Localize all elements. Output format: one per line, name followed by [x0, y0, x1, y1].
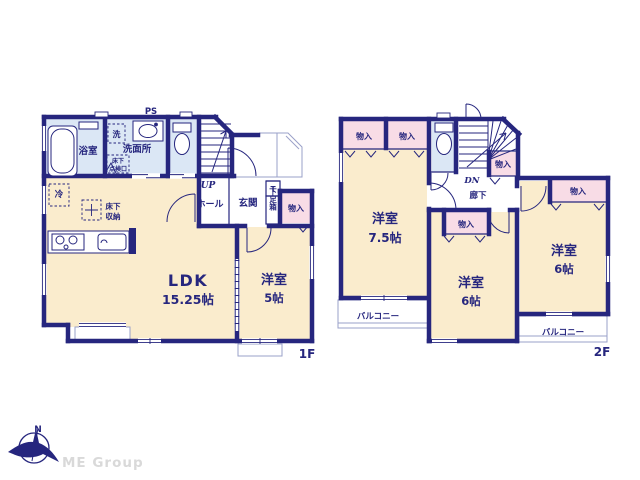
underfloor-hatch-label-2: 点検口	[109, 165, 127, 173]
ps-label: PS	[145, 107, 157, 117]
compass-north-label: N	[34, 425, 42, 435]
room75-name: 洋室	[372, 211, 398, 227]
floor2-label: 2F	[594, 345, 611, 359]
bathroom-label: 浴室	[78, 145, 98, 157]
shoebox-label: 下足箱	[268, 187, 277, 211]
room6c-name: 洋室	[458, 275, 484, 291]
underfloor-hatch-label-1: 床下	[112, 157, 124, 165]
bathtub-inner	[51, 129, 74, 173]
stove-burner-small	[64, 245, 68, 249]
westernroom1f-name: 洋室	[261, 272, 287, 288]
floor1-label: 1F	[299, 347, 316, 361]
logo-text: ME Group	[62, 455, 144, 471]
room75-size: 7.5帖	[368, 230, 401, 245]
kitchen-sink	[98, 234, 126, 250]
closet2f-center-label: 物入	[458, 219, 474, 229]
kitchen-wall-stub	[129, 228, 136, 254]
closet2f-stair-label: 物入	[495, 159, 511, 169]
closet2f-b-label: 物入	[399, 131, 415, 141]
ldk-name: LDK	[168, 271, 208, 290]
fridge-label: 冷	[55, 189, 64, 200]
underfloor-storage-label-1: 床下	[106, 201, 121, 211]
hall-label: ホール	[196, 199, 223, 210]
westernroom1f-size: 5帖	[264, 291, 284, 305]
balcony-left-label: バルコニー	[357, 311, 399, 322]
room6c-size: 6帖	[461, 294, 481, 308]
underfloor-storage-label-2: 収納	[106, 211, 121, 221]
closet1f-label: 物入	[288, 203, 304, 213]
washbasin-faucet	[155, 123, 158, 126]
toilet1f-tank	[173, 123, 191, 132]
washbasin-bowl	[139, 125, 157, 138]
toilet2f-bowl	[437, 134, 452, 155]
floorplan-page: PS 浴室 洗 洗面所 床下 点検口 UP ホール 玄関 T 下足箱 物入 冷 …	[0, 0, 640, 480]
toilet1f-bowl	[175, 134, 190, 155]
entrance-label: 玄関	[238, 197, 257, 209]
corridor-label: 廊下	[469, 190, 487, 201]
up-label: UP	[201, 181, 216, 191]
closet2f-right-label: 物入	[570, 186, 586, 196]
balcony-right-label: バルコニー	[542, 327, 584, 338]
stove-burner	[56, 236, 64, 244]
washroom-label: 洗面所	[123, 143, 152, 155]
room6r-name: 洋室	[551, 243, 577, 259]
toilet2f-tank	[435, 123, 453, 132]
bath-counter	[79, 122, 98, 129]
closet2f-a-label: 物入	[356, 131, 372, 141]
floorplan-drawing: PS 浴室 洗 洗面所 床下 点検口 UP ホール 玄関 T 下足箱 物入 冷 …	[0, 0, 640, 480]
washer-label: 洗	[113, 129, 121, 139]
room6r-size: 6帖	[554, 262, 574, 276]
stove-burner	[69, 236, 77, 244]
ldk-size: 15.25帖	[162, 292, 215, 307]
dn-label: DN	[463, 176, 480, 186]
